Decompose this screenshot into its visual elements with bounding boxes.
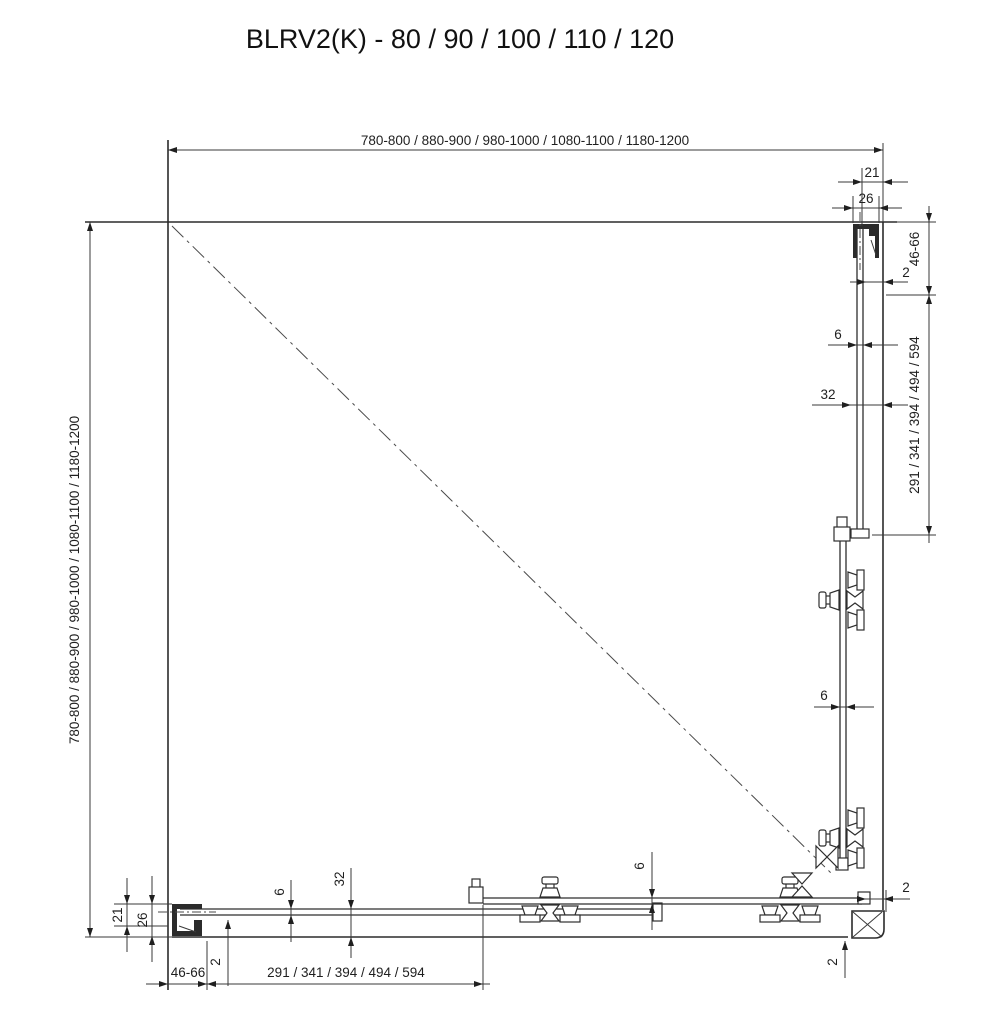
dim-26-bottom: 26 (135, 876, 172, 962)
dim-panel-lengths-right-label: 291 / 341 / 394 / 494 / 594 (907, 336, 922, 494)
dim-2-label: 2 (208, 958, 223, 966)
dim-overall-width-label: 780-800 / 880-900 / 980-1000 / 1080-1100… (361, 133, 689, 148)
dim-26-label: 26 (135, 912, 150, 927)
fixed-panel-right (851, 228, 869, 538)
dim-2-label: 2 (902, 265, 910, 280)
dim-panel-lengths-bottom-label: 291 / 341 / 394 / 494 / 594 (267, 965, 425, 980)
corner-guide-wheels (792, 846, 838, 897)
dim-46-66-right-label: 46-66 (907, 232, 922, 267)
dim-2-top-right: 2 (850, 265, 910, 285)
dim-2-label: 2 (902, 880, 910, 895)
profile-top-wall (172, 904, 202, 909)
profile-right-block (869, 224, 879, 236)
dim-2-corner-bottom: 2 (825, 941, 848, 978)
roller-assembly-right-mid (819, 570, 864, 630)
fixed-panel-bottom (180, 903, 662, 921)
dim-6-label: 6 (272, 888, 287, 896)
fixed-panel-end-cap (851, 529, 869, 538)
profile-right-block (194, 920, 202, 936)
drawing-page: BLRV2(K) - 80 / 90 / 100 / 110 / 120 (0, 0, 984, 1024)
roller-assembly-bottom-corner (760, 877, 820, 922)
door-end-bracket (469, 887, 483, 903)
dim-6-bottom-right: 6 (632, 852, 655, 930)
dim-32-label: 32 (820, 387, 835, 402)
dim-21-label: 21 (864, 165, 879, 180)
dim-chain-bottom: 46-66 291 / 341 / 394 / 494 / 594 (146, 905, 490, 990)
drawing-title: BLRV2(K) - 80 / 90 / 100 / 110 / 120 (246, 24, 674, 54)
enclosure-walls (85, 140, 897, 990)
dim-2-bottom-left: 2 (208, 920, 231, 986)
dim-6-bottom-left: 6 (272, 880, 294, 942)
dim-overall-depth: 780-800 / 880-900 / 980-1000 / 1080-1100… (67, 222, 172, 937)
dim-26-label: 26 (858, 191, 873, 206)
dim-chain-right: 46-66 291 / 341 / 394 / 494 / 594 (872, 206, 936, 543)
sliding-door-bottom (469, 879, 870, 904)
dim-overall-depth-label: 780-800 / 880-900 / 980-1000 / 1080-1100… (67, 416, 82, 744)
dim-6-label: 6 (834, 327, 842, 342)
roller-assembly-bottom-mid (520, 877, 580, 922)
dim-21-label: 21 (110, 907, 125, 922)
door-top-bracket (834, 527, 850, 541)
dim-6-label: 6 (820, 688, 828, 703)
dim-26-right: 26 (832, 191, 902, 223)
dim-32-label: 32 (332, 871, 347, 886)
dim-32-bottom: 32 (332, 868, 354, 958)
technical-drawing: BLRV2(K) - 80 / 90 / 100 / 110 / 120 (0, 0, 984, 1024)
dim-6-right-lower: 6 (814, 688, 874, 710)
dim-overall-width: 780-800 / 880-900 / 980-1000 / 1080-1100… (168, 133, 883, 222)
dim-46-66-bottom-label: 46-66 (171, 965, 206, 980)
title-block: BLRV2(K) - 80 / 90 / 100 / 110 / 120 (246, 24, 674, 54)
dim-32-right: 32 (812, 387, 908, 408)
diagonal-centerline (172, 226, 832, 874)
dim-2-label: 2 (825, 958, 840, 966)
dim-6-label: 6 (632, 862, 647, 870)
